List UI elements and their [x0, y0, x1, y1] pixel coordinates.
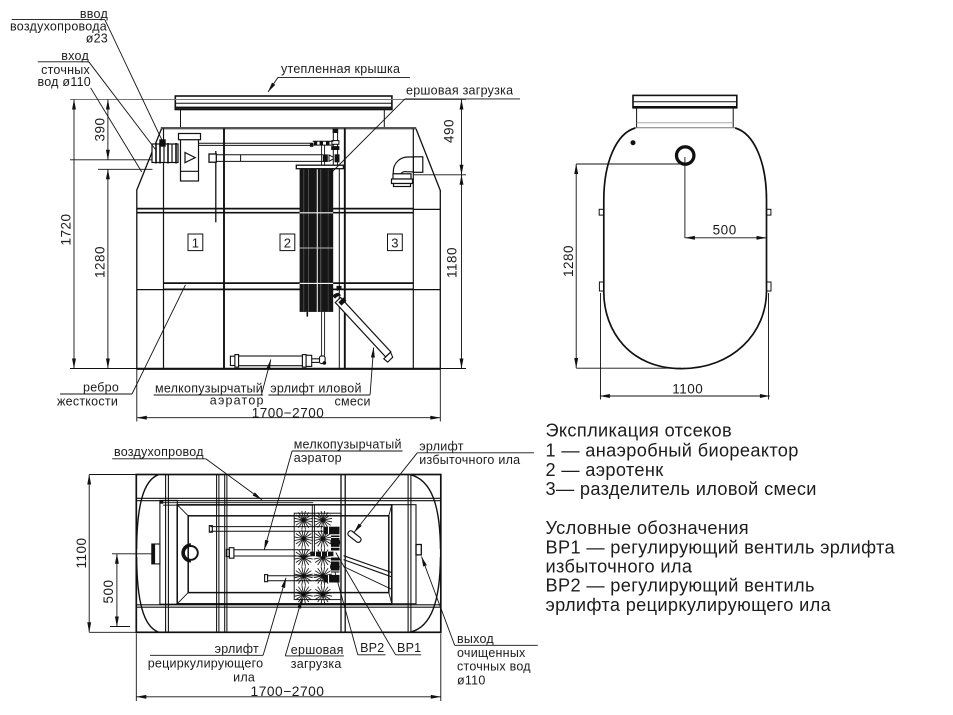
svg-text:1100: 1100	[672, 381, 703, 396]
svg-text:500: 500	[713, 223, 737, 238]
svg-text:аэратор: аэратор	[210, 394, 265, 408]
svg-text:выход: выход	[457, 632, 494, 646]
svg-text:воздухопровод: воздухопровод	[114, 445, 204, 459]
svg-text:ребро: ребро	[83, 381, 119, 395]
svg-text:избыточного ила: избыточного ила	[419, 453, 520, 467]
svg-text:500: 500	[101, 579, 116, 603]
svg-text:очищенных: очищенных	[457, 646, 526, 660]
svg-text:ВР1: ВР1	[397, 641, 421, 655]
svg-text:рециркулирующего: рециркулирующего	[148, 656, 264, 670]
svg-text:избыточного ила: избыточного ила	[546, 557, 693, 577]
svg-text:вход: вход	[61, 49, 89, 63]
svg-text:1280: 1280	[93, 246, 108, 278]
svg-text:ø110: ø110	[457, 674, 486, 688]
svg-text:эрлифт: эрлифт	[215, 642, 259, 656]
svg-text:жесткости: жесткости	[57, 394, 118, 408]
svg-text:утепленная крышка: утепленная крышка	[281, 62, 400, 76]
svg-text:2: 2	[284, 236, 291, 251]
svg-text:1100: 1100	[74, 537, 89, 568]
svg-text:ершовая: ершовая	[291, 643, 344, 657]
svg-text:эрлифт: эрлифт	[419, 439, 463, 453]
svg-text:Условные обозначения: Условные обозначения	[546, 518, 750, 538]
svg-text:аэратор: аэратор	[294, 451, 342, 465]
svg-text:ершовая загрузка: ершовая загрузка	[406, 84, 513, 98]
svg-text:загрузка: загрузка	[291, 657, 342, 671]
svg-text:ВР2: ВР2	[360, 641, 384, 655]
svg-text:ила: ила	[233, 670, 255, 684]
svg-text:ВР1 — регулирующий вентиль: ВР1 — регулирующий вентиль эрлифта	[546, 538, 896, 558]
svg-text:вод ø110: вод ø110	[37, 75, 91, 89]
svg-text:2 — аэротенк: 2 — аэротенк	[546, 460, 665, 480]
svg-text:Экспликация отсеков: Экспликация отсеков	[546, 421, 733, 441]
svg-text:1 — анаэробный биореактор: 1 — анаэробный биореактор	[546, 441, 799, 461]
svg-text:1720: 1720	[59, 213, 74, 245]
svg-text:1180: 1180	[445, 247, 460, 278]
svg-text:ВР2 — регулирующий вентиль: ВР2 — регулирующий вентиль	[546, 576, 815, 596]
svg-text:1700−2700: 1700−2700	[251, 684, 325, 699]
svg-text:3: 3	[391, 236, 398, 251]
svg-text:3— разделитель иловой смеси: 3— разделитель иловой смеси	[546, 479, 817, 499]
svg-text:смеси: смеси	[335, 394, 371, 408]
svg-text:эрлифт иловой: эрлифт иловой	[270, 381, 361, 395]
svg-text:1: 1	[192, 236, 199, 251]
svg-text:мелкопузырчатый: мелкопузырчатый	[294, 437, 402, 451]
svg-text:сточных вод: сточных вод	[457, 660, 531, 674]
svg-text:490: 490	[442, 119, 457, 143]
svg-text:1280: 1280	[561, 245, 576, 277]
svg-text:ø23: ø23	[86, 32, 108, 46]
svg-text:390: 390	[93, 117, 108, 141]
svg-text:эрлифта рециркулирующего ила: эрлифта рециркулирующего ила	[546, 595, 832, 615]
